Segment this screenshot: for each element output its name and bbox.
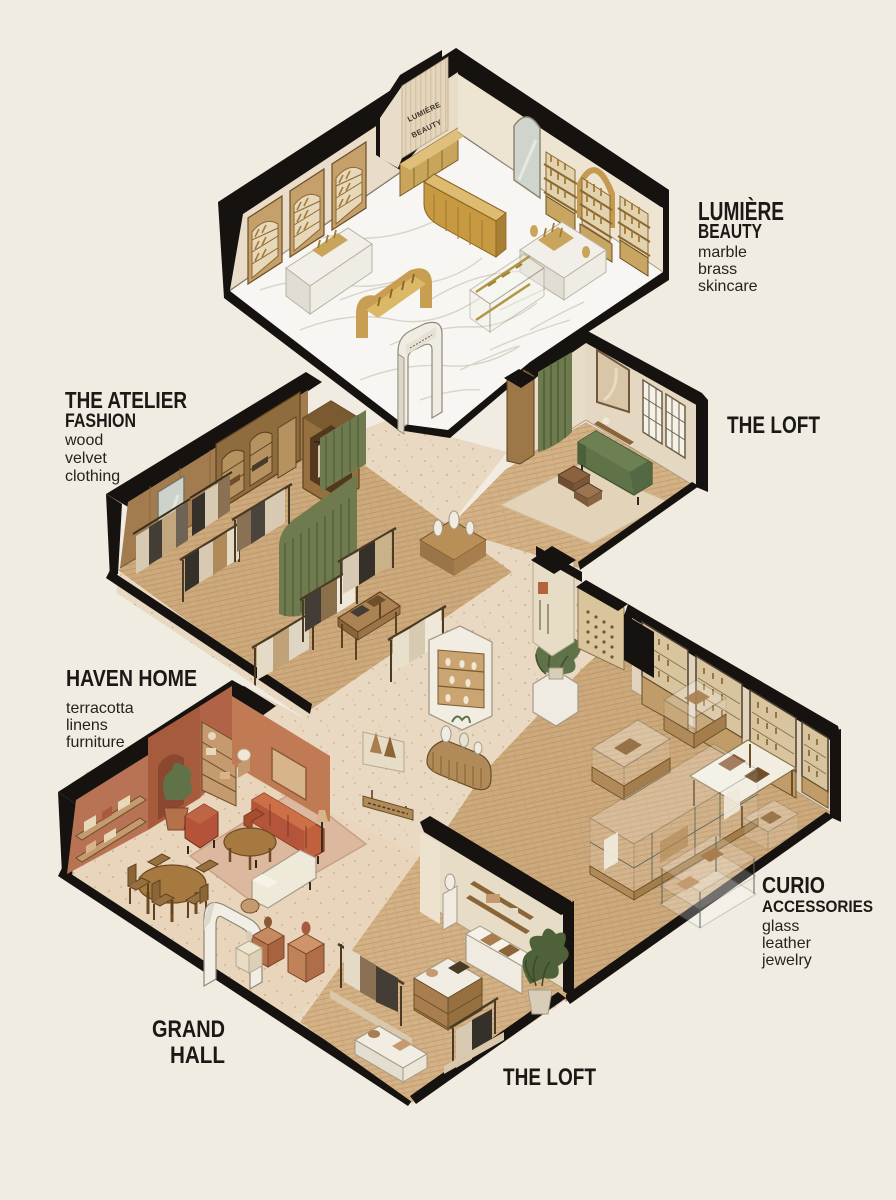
svg-text:CURIO: CURIO (762, 872, 825, 898)
svg-text:THE ATELIER: THE ATELIER (65, 387, 187, 413)
svg-text:ACCESSORIES: ACCESSORIES (762, 897, 873, 916)
svg-text:GRAND: GRAND (152, 1016, 225, 1043)
svg-text:brass: brass (698, 261, 737, 278)
svg-text:terracotta: terracotta (66, 700, 134, 717)
svg-text:FASHION: FASHION (65, 411, 136, 432)
svg-text:furniture: furniture (66, 734, 125, 751)
svg-text:leather: leather (762, 935, 812, 952)
svg-text:THE LOFT: THE LOFT (727, 412, 820, 439)
svg-text:skincare: skincare (698, 278, 758, 295)
svg-text:jewelry: jewelry (761, 952, 812, 969)
svg-text:marble: marble (698, 244, 747, 261)
svg-text:clothing: clothing (65, 468, 120, 485)
svg-text:wood: wood (64, 432, 103, 449)
svg-text:THE LOFT: THE LOFT (503, 1064, 596, 1091)
svg-text:glass: glass (762, 918, 799, 935)
svg-text:HALL: HALL (170, 1042, 225, 1069)
svg-text:linens: linens (66, 717, 108, 734)
svg-text:HAVEN HOME: HAVEN HOME (66, 665, 197, 691)
svg-text:velvet: velvet (65, 450, 107, 467)
svg-text:BEAUTY: BEAUTY (698, 221, 763, 243)
